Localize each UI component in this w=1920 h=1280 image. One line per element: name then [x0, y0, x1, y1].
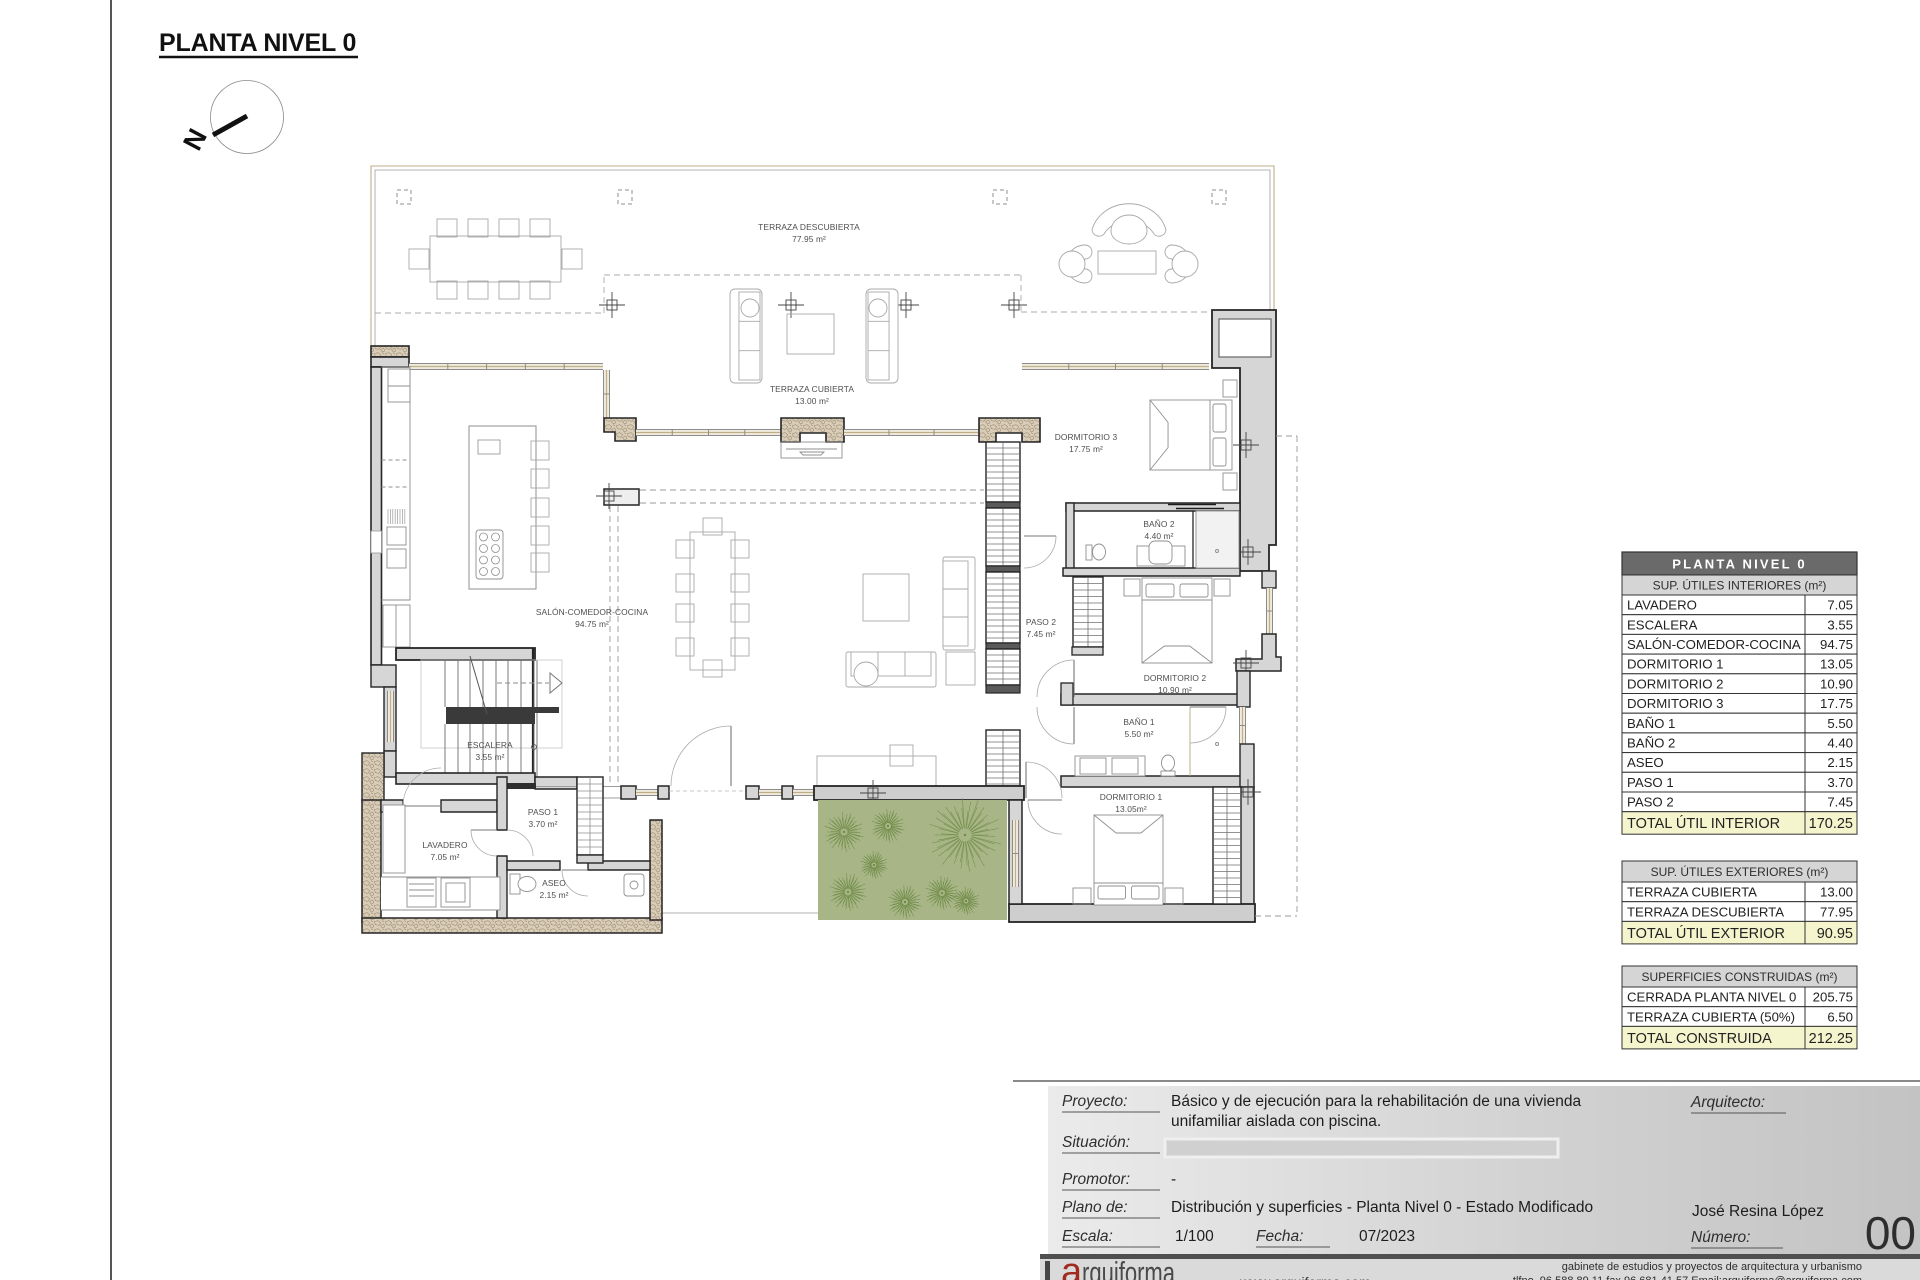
svg-text:DORMITORIO 1: DORMITORIO 1	[1627, 657, 1723, 672]
svg-text:LAVADERO: LAVADERO	[1627, 598, 1697, 613]
svg-text:7.05 m²: 7.05 m²	[430, 852, 459, 862]
svg-text:Escala:: Escala:	[1062, 1228, 1113, 1245]
svg-text:Básico y de ejecución para la: Básico y de ejecución para la rehabilita…	[1171, 1093, 1582, 1110]
svg-text:SALÓN-COMEDOR-COCINA: SALÓN-COMEDOR-COCINA	[536, 607, 649, 617]
svg-text:4.40: 4.40	[1827, 736, 1853, 751]
svg-text:Proyecto:: Proyecto:	[1062, 1093, 1127, 1110]
svg-text:DORMITORIO 2: DORMITORIO 2	[1144, 673, 1207, 683]
svg-text:TOTAL ÚTIL EXTERIOR: TOTAL ÚTIL EXTERIOR	[1627, 925, 1785, 942]
svg-text:3.70: 3.70	[1827, 775, 1853, 790]
svg-text:2.15 m²: 2.15 m²	[539, 890, 568, 900]
svg-text:6.50: 6.50	[1827, 1009, 1853, 1024]
svg-text:gabinete de estudios y proyect: gabinete de estudios y proyectos de arqu…	[1562, 1261, 1862, 1273]
svg-text:07/2023: 07/2023	[1359, 1228, 1415, 1245]
svg-text:TERRAZA DESCUBIERTA: TERRAZA DESCUBIERTA	[758, 222, 860, 232]
svg-text:www.arquiforma.com: www.arquiforma.com	[1239, 1274, 1371, 1280]
svg-text:TERRAZA CUBIERTA (50%): TERRAZA CUBIERTA (50%)	[1627, 1009, 1795, 1024]
svg-text:00: 00	[1865, 1207, 1916, 1259]
svg-text:Arquitecto:: Arquitecto:	[1690, 1094, 1765, 1111]
svg-text:5.50 m²: 5.50 m²	[1124, 729, 1153, 739]
svg-text:PLANTA NIVEL 0: PLANTA NIVEL 0	[159, 29, 357, 57]
svg-text:Número:: Número:	[1691, 1229, 1750, 1246]
svg-text:DORMITORIO 2: DORMITORIO 2	[1627, 676, 1723, 691]
svg-text:7.45: 7.45	[1827, 795, 1853, 810]
svg-text:ESCALERA: ESCALERA	[467, 740, 513, 750]
svg-text:BAÑO 1: BAÑO 1	[1627, 716, 1675, 731]
svg-text:SALÓN-COMEDOR-COCINA: SALÓN-COMEDOR-COCINA	[1627, 637, 1801, 652]
svg-text:PLANTA NIVEL 0: PLANTA NIVEL 0	[1672, 557, 1807, 572]
svg-text:unifamiliar aislada con piscin: unifamiliar aislada con piscina.	[1171, 1113, 1381, 1130]
svg-text:a: a	[1061, 1251, 1083, 1280]
svg-text:TERRAZA DESCUBIERTA: TERRAZA DESCUBIERTA	[1627, 904, 1784, 919]
svg-text:10.90 m²: 10.90 m²	[1158, 685, 1192, 695]
svg-text:TOTAL CONSTRUIDA: TOTAL CONSTRUIDA	[1627, 1031, 1772, 1047]
svg-text:SUP. ÚTILES INTERIORES (m²): SUP. ÚTILES INTERIORES (m²)	[1653, 578, 1827, 593]
svg-text:ASEO: ASEO	[1627, 755, 1664, 770]
svg-text:-: -	[1171, 1171, 1176, 1188]
svg-text:LAVADERO: LAVADERO	[422, 840, 468, 850]
svg-text:DORMITORIO 3: DORMITORIO 3	[1627, 696, 1723, 711]
svg-text:BAÑO 2: BAÑO 2	[1627, 736, 1675, 751]
svg-text:DORMITORIO 3: DORMITORIO 3	[1055, 432, 1118, 442]
svg-text:2.15: 2.15	[1827, 755, 1853, 770]
svg-text:13.00: 13.00	[1820, 885, 1853, 900]
svg-text:José Resina López: José Resina López	[1692, 1203, 1824, 1220]
svg-text:Distribución y superficies - P: Distribución y superficies - Planta Nive…	[1171, 1199, 1593, 1216]
svg-text:77.95 m²: 77.95 m²	[792, 234, 826, 244]
svg-text:TERRAZA CUBIERTA: TERRAZA CUBIERTA	[1627, 885, 1757, 900]
svg-text:SUPERFICIES CONSTRUIDAS (m²): SUPERFICIES CONSTRUIDAS (m²)	[1641, 970, 1837, 984]
svg-text:SUP. ÚTILES EXTERIORES (m²): SUP. ÚTILES EXTERIORES (m²)	[1651, 864, 1829, 879]
svg-text:TOTAL ÚTIL INTERIOR: TOTAL ÚTIL INTERIOR	[1627, 815, 1780, 832]
svg-text:4.40 m²: 4.40 m²	[1144, 531, 1173, 541]
svg-text:7.45 m²: 7.45 m²	[1026, 629, 1055, 639]
svg-text:TERRAZA CUBIERTA: TERRAZA CUBIERTA	[770, 384, 854, 394]
svg-text:7.05: 7.05	[1827, 598, 1853, 613]
svg-text:CERRADA PLANTA NIVEL 0: CERRADA PLANTA NIVEL 0	[1627, 990, 1796, 1005]
svg-text:Plano de:: Plano de:	[1062, 1199, 1128, 1216]
svg-text:3.70 m²: 3.70 m²	[528, 819, 557, 829]
svg-text:rquiforma: rquiforma	[1082, 1255, 1176, 1280]
svg-text:Fecha:: Fecha:	[1256, 1228, 1303, 1245]
svg-text:BAÑO 1: BAÑO 1	[1123, 717, 1155, 727]
svg-text:17.75: 17.75	[1820, 696, 1853, 711]
svg-text:ASEO: ASEO	[542, 878, 566, 888]
svg-text:90.95: 90.95	[1817, 926, 1853, 942]
svg-text:17.75 m²: 17.75 m²	[1069, 444, 1103, 454]
svg-text:3.55: 3.55	[1827, 617, 1853, 632]
svg-text:3.55 m²: 3.55 m²	[475, 752, 504, 762]
svg-text:PASO 2: PASO 2	[1026, 617, 1056, 627]
svg-text:5.50: 5.50	[1827, 716, 1853, 731]
svg-text:DORMITORIO 1: DORMITORIO 1	[1100, 792, 1163, 802]
svg-text:94.75 m²: 94.75 m²	[575, 619, 609, 629]
svg-text:212.25: 212.25	[1809, 1031, 1853, 1047]
svg-text:1/100: 1/100	[1175, 1228, 1214, 1245]
svg-text:13.00 m²: 13.00 m²	[795, 396, 829, 406]
svg-text:Situación:: Situación:	[1062, 1134, 1130, 1151]
svg-text:94.75: 94.75	[1820, 637, 1853, 652]
svg-text:13.05m²: 13.05m²	[1115, 804, 1147, 814]
svg-text:10.90: 10.90	[1820, 676, 1853, 691]
svg-text:BAÑO 2: BAÑO 2	[1143, 519, 1175, 529]
svg-text:170.25: 170.25	[1809, 816, 1853, 832]
svg-text:PASO 2: PASO 2	[1627, 795, 1674, 810]
svg-text:ESCALERA: ESCALERA	[1627, 617, 1698, 632]
svg-text:Promotor:: Promotor:	[1062, 1171, 1130, 1188]
svg-text:205.75: 205.75	[1813, 990, 1853, 1005]
svg-text:PASO 1: PASO 1	[528, 807, 558, 817]
svg-text:13.05: 13.05	[1820, 657, 1853, 672]
svg-text:PASO 1: PASO 1	[1627, 775, 1674, 790]
svg-text:tlfno. 96 588 89 11 fax 96 6: tlfno. 96 588 89 11 fax 96 681 41 57 Ema…	[1513, 1275, 1862, 1280]
svg-text:77.95: 77.95	[1820, 904, 1853, 919]
